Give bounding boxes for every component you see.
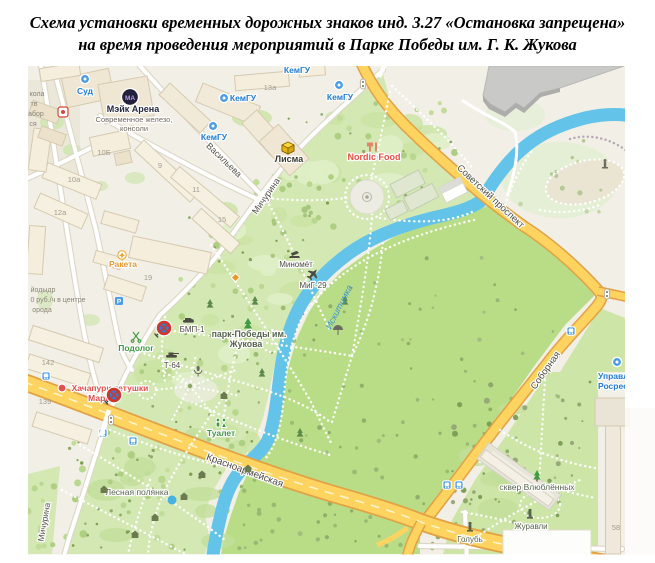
- svg-text:Лисма: Лисма: [275, 154, 304, 164]
- svg-text:15: 15: [218, 215, 226, 224]
- svg-text:142: 142: [42, 358, 55, 367]
- svg-text:Ракета: Ракета: [109, 259, 137, 269]
- svg-text:13а: 13а: [264, 83, 277, 92]
- svg-text:P: P: [117, 299, 122, 306]
- svg-text:сквер Влюблённых: сквер Влюблённых: [499, 482, 575, 492]
- svg-text:Nordic Food: Nordic Food: [348, 152, 401, 162]
- svg-text:0 руб./ч в центре: 0 руб./ч в центре: [30, 296, 85, 304]
- svg-text:Туалет: Туалет: [207, 428, 235, 438]
- svg-text:БМП-1: БМП-1: [180, 325, 205, 334]
- svg-text:КемГУ: КемГУ: [284, 65, 311, 75]
- svg-text:Современное железо,: Современное железо,: [96, 115, 173, 124]
- svg-text:Подолог: Подолог: [118, 343, 154, 353]
- svg-text:10Б: 10Б: [97, 148, 110, 157]
- svg-text:консоли: консоли: [120, 124, 148, 133]
- svg-text:орода: орода: [32, 307, 52, 314]
- svg-text:ся: ся: [29, 121, 37, 128]
- svg-text:Суд: Суд: [77, 86, 94, 96]
- svg-text:11: 11: [192, 185, 200, 194]
- svg-text:Жукова: Жукова: [229, 339, 263, 349]
- svg-text:КемГУ: КемГУ: [230, 93, 257, 103]
- svg-text:абор: абор: [28, 110, 44, 118]
- svg-text:12а: 12а: [54, 208, 67, 217]
- svg-text:МиГ-29: МиГ-29: [299, 281, 327, 290]
- svg-text:19: 19: [144, 273, 152, 282]
- svg-text:Журавли: Журавли: [514, 522, 547, 531]
- svg-text:10а: 10а: [68, 175, 81, 184]
- svg-text:кола: кола: [30, 91, 45, 98]
- svg-text:йодыдр: йодыдр: [31, 286, 56, 294]
- svg-text:9: 9: [158, 161, 162, 170]
- svg-text:Голубь: Голубь: [457, 535, 483, 544]
- svg-text:Т-64: Т-64: [164, 361, 181, 370]
- svg-text:парк-Победы им.: парк-Победы им.: [212, 329, 287, 339]
- svg-text:139: 139: [39, 397, 52, 406]
- svg-text:МА: МА: [125, 95, 135, 102]
- svg-text:Мэйк Арена: Мэйк Арена: [107, 104, 160, 114]
- svg-text:58: 58: [612, 523, 620, 532]
- svg-text:КемГУ: КемГУ: [201, 132, 228, 142]
- svg-text:Лесная полянка: Лесная полянка: [106, 487, 169, 497]
- svg-text:Миномёт: Миномёт: [279, 260, 313, 269]
- svg-text:тв: тв: [31, 101, 38, 108]
- svg-text:КемГУ: КемГУ: [327, 92, 354, 102]
